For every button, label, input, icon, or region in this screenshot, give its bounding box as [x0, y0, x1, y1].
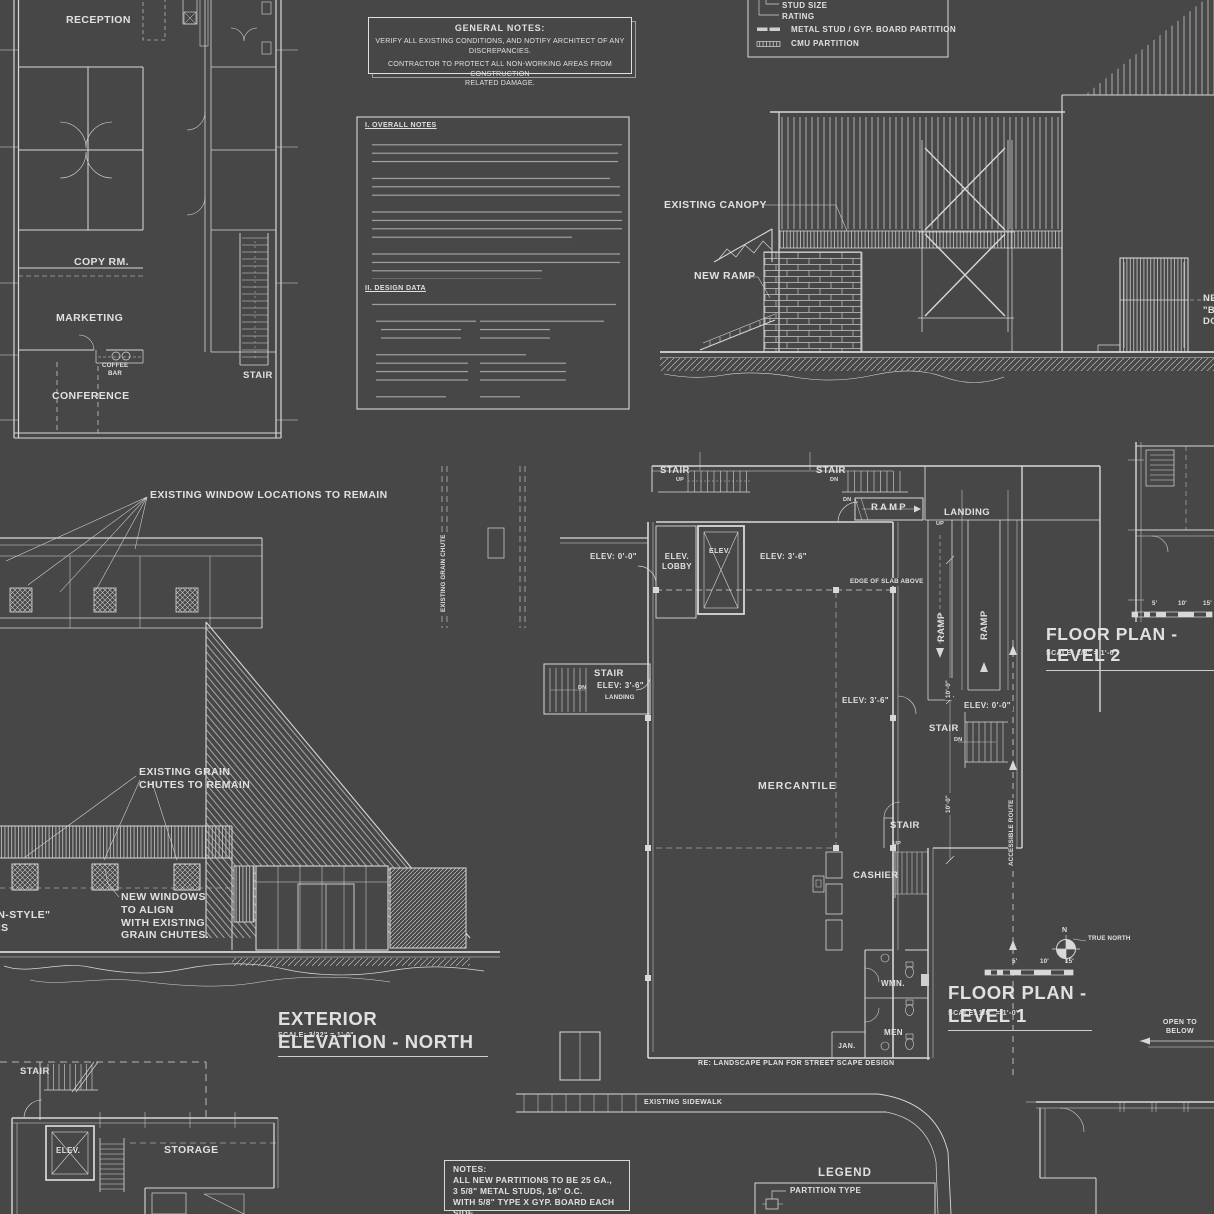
legend-bottom-partition-type: PARTITION TYPE	[790, 1186, 861, 1196]
overall-notes-section1: I. OVERALL NOTES	[365, 122, 437, 131]
level2-bar-tick-10: 10'	[1178, 600, 1187, 608]
label-new-windows: NEW WINDOWS TO ALIGN WITH EXISTING GRAIN…	[121, 891, 209, 942]
partition-notes-title: NOTES:	[453, 1164, 629, 1175]
general-notes-line1: VERIFY ALL EXISTING CONDITIONS, AND NOTI…	[369, 37, 631, 56]
level1-bar-tick-5: 5'	[1012, 958, 1017, 966]
plan-label-elev-cab: ELEV.	[709, 548, 731, 557]
scale-floor-plan-level1: SCALE: 1/8" = 1'-0"	[948, 1010, 1020, 1019]
plan-label-cashier: CASHIER	[853, 870, 899, 882]
legend-top-stud-size: STUD SIZE	[782, 1, 827, 11]
plan-label-mercantile: MERCANTILE	[758, 780, 837, 793]
plan-dim-10-b: 10'-0"	[945, 793, 953, 815]
bottom-right-plan-linework	[1026, 1102, 1214, 1214]
plan-label-ramp-top: RAMP	[871, 502, 908, 514]
basement-plan-linework	[0, 1062, 280, 1214]
basement-label-elev: ELEV.	[56, 1146, 80, 1156]
plan-label-edge-of-slab: EDGE OF SLAB ABOVE	[848, 578, 926, 586]
level1-plan-linework	[442, 452, 1100, 1214]
room-label-stair-office: STAIR	[243, 370, 273, 382]
plan-label-men: MEN	[884, 1028, 903, 1038]
legend-top-metal-stud: METAL STUD / GYP. BOARD PARTITION	[791, 25, 956, 35]
blueprint-sheet: RECEPTION COPY RM. MARKETING COFFEE BAR …	[0, 0, 1214, 1214]
plan-label-re-landscape: RE: LANDSCAPE PLAN FOR STREET SCAPE DESI…	[698, 1060, 894, 1069]
overall-notes-linework	[357, 117, 629, 409]
label-new-ramp: NEW RAMP	[694, 270, 756, 283]
general-notes-box: GENERAL NOTES: VERIFY ALL EXISTING CONDI…	[368, 17, 632, 74]
room-label-conference: CONFERENCE	[52, 390, 130, 403]
legend-bottom-title: LEGEND	[818, 1166, 872, 1180]
plan-label-elev36-a: ELEV: 3'-6"	[760, 552, 807, 562]
room-label-marketing: MARKETING	[56, 312, 123, 325]
label-grain-chutes: EXISTING GRAIN CHUTES TO REMAIN	[139, 766, 250, 792]
plan-label-dn-ramp: DN	[843, 497, 851, 504]
plan-label-stair-se: STAIR	[890, 820, 920, 832]
plan-label-existing-grain-chute: EXISTING GRAIN CHUTE	[440, 532, 448, 614]
general-notes-line2: CONTRACTOR TO PROTECT ALL NON-WORKING AR…	[369, 60, 631, 89]
plan-label-landing-west: LANDING	[605, 694, 635, 702]
partition-notes-line1: ALL NEW PARTITIONS TO BE 25 GA.,	[453, 1175, 629, 1186]
plan-label-elev-lobby: ELEV. LOBBY	[660, 552, 694, 572]
plan-label-elev36-b: ELEV: 3'-6"	[842, 696, 889, 706]
plan-label-dn-west: DN	[578, 685, 586, 692]
level1-bar-tick-10: 10'	[1040, 958, 1049, 966]
plan-label-existing-sidewalk: EXISTING SIDEWALK	[642, 1099, 724, 1108]
general-notes-title: GENERAL NOTES:	[369, 23, 631, 33]
plan-label-stair-east: STAIR	[929, 723, 959, 735]
plan-label-up-nw: UP	[676, 477, 684, 484]
level2-plan-linework	[1128, 442, 1214, 622]
label-existing-windows: EXISTING WINDOW LOCATIONS TO REMAIN	[150, 489, 388, 502]
compass-true-north-label: TRUE NORTH	[1088, 935, 1131, 943]
blueprint-linework	[0, 0, 1214, 1214]
legend-top-rating: RATING	[782, 12, 814, 22]
title-floor-plan-level2: FLOOR PLAN - LEVEL 2	[1046, 624, 1214, 671]
partition-notes-line2: 3 5/8" METAL STUDS, 16" O.C.	[453, 1186, 629, 1197]
plan-label-stair-nw: STAIR	[660, 465, 690, 477]
label-barn-doors-left: NEW "BARN-STYLE" DOORS	[0, 896, 68, 934]
plan-label-elev0-east: ELEV: 0'-0"	[962, 701, 1013, 711]
plan-label-stair-west: STAIR	[594, 668, 624, 680]
basement-label-storage: STORAGE	[164, 1144, 219, 1157]
plan-label-accessible-route: ACCESSIBLE ROUTE	[1008, 798, 1016, 868]
plan-label-dn-east: DN	[954, 737, 962, 744]
plan-label-stair-ne: STAIR	[816, 465, 846, 477]
plan-label-elev36-landing: ELEV: 3'-6"	[597, 681, 644, 691]
plan-label-elev0-west: ELEV: 0'-0"	[590, 552, 637, 562]
plan-label-jan: JAN.	[838, 1043, 856, 1052]
overall-notes-section2: II. DESIGN DATA	[365, 285, 426, 294]
room-label-reception: RECEPTION	[66, 14, 131, 27]
label-existing-canopy: EXISTING CANOPY	[664, 199, 767, 212]
plan-label-wmn: WMN.	[881, 979, 905, 989]
level1-bar-tick-15: 15'	[1065, 958, 1074, 966]
partition-notes-box: NOTES: ALL NEW PARTITIONS TO BE 25 GA., …	[444, 1160, 630, 1211]
scale-floor-plan-level2: SCALE: 1/8" = 1'-0"	[1046, 650, 1118, 659]
title-floor-plan-level1: FLOOR PLAN - LEVEL 1	[948, 982, 1092, 1031]
plan-label-ramp-v2: RAMP	[979, 610, 991, 640]
label-open-to-below: OPEN TO BELOW	[1148, 1019, 1212, 1036]
plan-label-dn-ne: DN	[830, 477, 838, 484]
room-label-copy-room: COPY RM.	[74, 256, 129, 269]
north-elevation-linework	[0, 497, 500, 986]
basement-label-stair: STAIR	[20, 1066, 50, 1078]
scale-exterior-elevation: SCALE: 3/32" = 1'-0"	[278, 1032, 354, 1041]
level2-bar-tick-5: 5'	[1152, 600, 1157, 608]
plan-label-up-landing: UP	[936, 521, 944, 528]
plan-label-landing-ne: LANDING	[944, 507, 990, 519]
plan-label-ramp-v1: RAMP	[936, 612, 948, 642]
legend-top-cmu: CMU PARTITION	[791, 39, 859, 49]
label-barn-doors-right: NEW "BARN-STYLE" DOORS	[1203, 293, 1214, 328]
compass-n-label: N	[1062, 927, 1067, 936]
room-label-coffee-bar: COFFEE BAR	[102, 362, 128, 377]
plan-dim-10-a: 10'-0"	[945, 678, 953, 700]
partition-notes-line3: WITH 5/8" TYPE X GYP. BOARD EACH SIDE	[453, 1197, 629, 1214]
level2-bar-tick-15: 15'	[1203, 600, 1212, 608]
open-to-below-lines	[1140, 1038, 1214, 1048]
plan-label-up-se: UP	[893, 841, 901, 848]
